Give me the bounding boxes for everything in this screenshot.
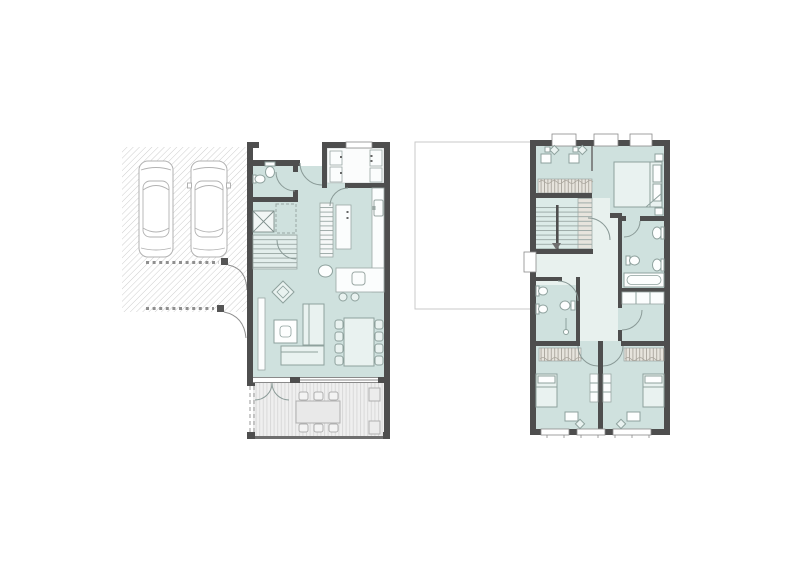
north-window	[552, 134, 576, 146]
garage-roof-outline	[415, 142, 531, 309]
desk	[565, 412, 578, 421]
coffee-table	[274, 320, 297, 343]
dining-table	[344, 318, 374, 366]
side-mirror	[188, 183, 192, 188]
floor-plan-drawing	[0, 0, 800, 577]
desk	[569, 154, 579, 163]
basin	[319, 265, 333, 277]
stool	[351, 293, 359, 301]
sink	[539, 305, 548, 313]
west-window	[524, 252, 536, 272]
toilet-tank	[265, 162, 275, 166]
master-bedroom	[614, 154, 663, 215]
nightstand	[655, 208, 663, 215]
terrace	[247, 380, 390, 439]
pillow	[645, 376, 662, 383]
dresser	[590, 374, 598, 402]
stool	[339, 293, 347, 301]
dresser	[603, 374, 611, 402]
planter	[369, 388, 380, 401]
study-wardrobe	[538, 179, 593, 193]
desk	[627, 412, 640, 421]
built-in-closet	[622, 292, 664, 304]
toilet-tank	[571, 301, 575, 310]
sink	[653, 227, 662, 239]
south-window	[541, 429, 569, 435]
side-mirror	[227, 183, 231, 188]
pillow	[538, 376, 555, 383]
fence-post	[221, 258, 228, 265]
south-window	[577, 429, 605, 435]
toilet	[630, 256, 640, 265]
planter	[369, 421, 380, 434]
wc-sink	[255, 175, 265, 183]
pillow	[653, 165, 661, 182]
kitchen-tall-cabinet	[336, 205, 351, 249]
terrace-edge	[247, 436, 390, 439]
pantry-window	[346, 142, 372, 148]
window-ticks	[547, 435, 649, 438]
floor-plan-sheet	[0, 0, 800, 577]
toilet	[560, 301, 570, 310]
car-1	[139, 161, 173, 257]
ground-floor-plan	[122, 142, 390, 439]
south-window	[613, 429, 651, 435]
north-window	[630, 134, 652, 146]
sideboard	[258, 298, 265, 370]
fence-post	[217, 305, 224, 312]
outdoor-table	[296, 401, 340, 423]
nightstand	[655, 154, 663, 161]
gate-swing-arc	[224, 312, 246, 338]
desk	[541, 154, 551, 163]
toilet	[266, 167, 275, 178]
upper-staircase	[536, 198, 578, 250]
upper-floor-plan	[415, 134, 670, 438]
living-glass-wall	[253, 377, 384, 383]
sink	[653, 259, 662, 271]
north-window	[594, 134, 618, 146]
pillow	[653, 184, 661, 201]
car-2	[188, 161, 231, 257]
sink	[539, 287, 548, 295]
shower-head	[564, 330, 569, 335]
